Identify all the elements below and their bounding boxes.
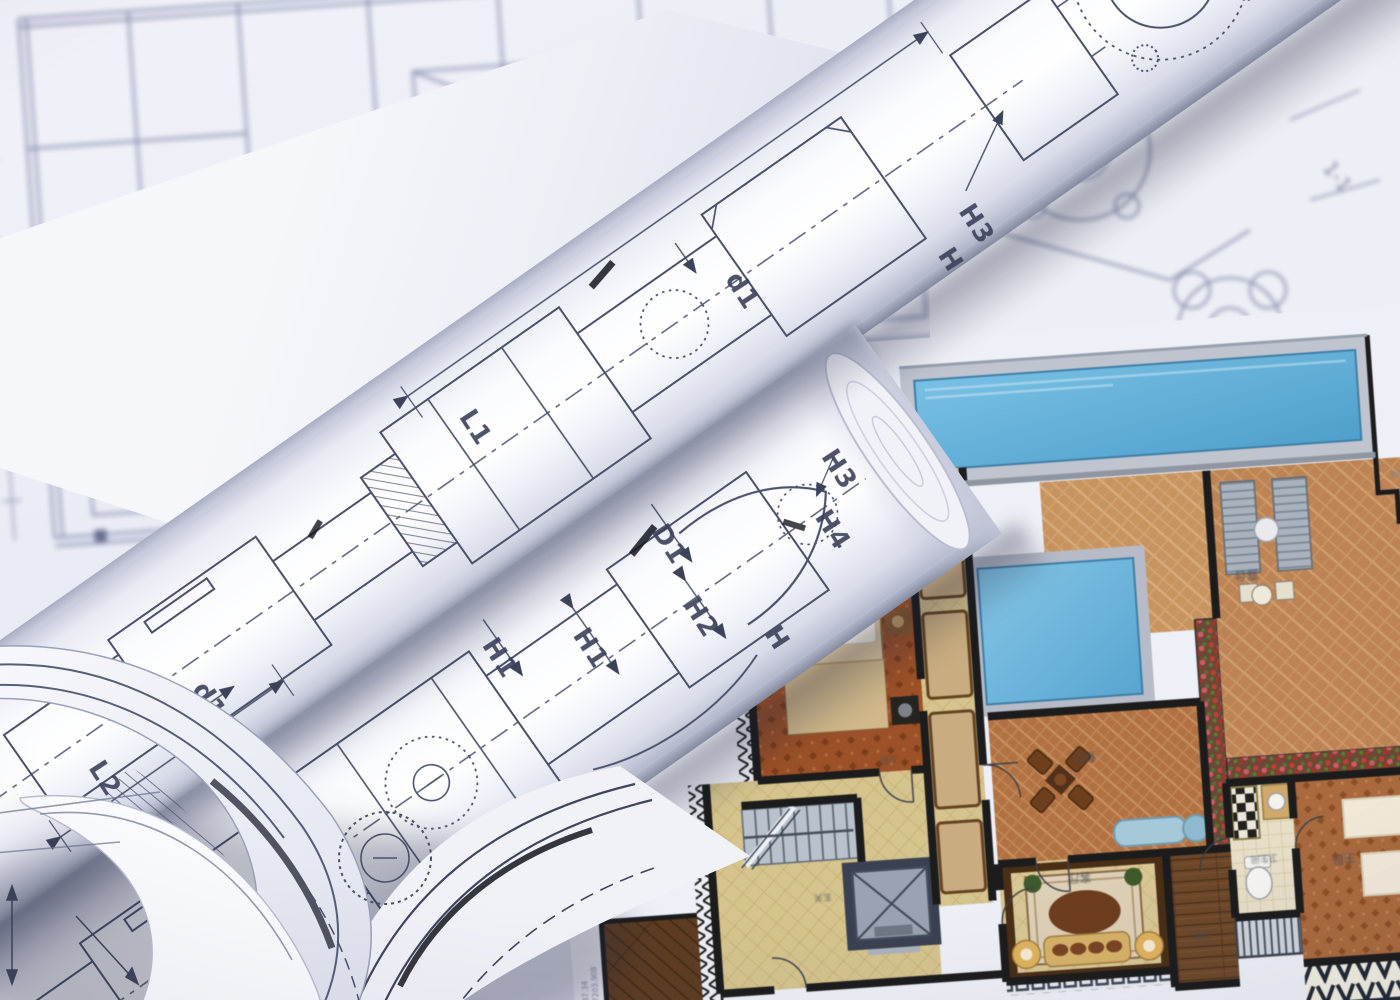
sun-lounger [1272,477,1312,571]
room-label-terrace: 露台 [1234,567,1259,584]
sofa [1043,931,1131,967]
elevator [842,857,942,957]
dimension-label-h4: H4 [931,242,979,293]
dimension-label-d1b: d1 [719,267,765,316]
roof-terrace [1206,456,1400,758]
side-table [1254,517,1280,543]
section-label: 1-1 [1318,156,1357,197]
room-label-living: 客厅 [1067,870,1092,887]
photo-scene: 知末 www.znzmo.com 二层平面图 1-1 [0,0,1400,1000]
dimension-label-h3: H3 [952,199,1000,250]
checkered-mat [1230,786,1260,840]
dimension-label-h4: H4 [808,505,856,556]
room-label-master: 主卧 [1331,851,1356,867]
roll-end-curls [0,556,830,1000]
dining-room [988,702,1211,864]
room-label-dining: 餐厅 [1071,749,1096,766]
massage-bench [1113,816,1187,847]
sink [1267,793,1285,811]
